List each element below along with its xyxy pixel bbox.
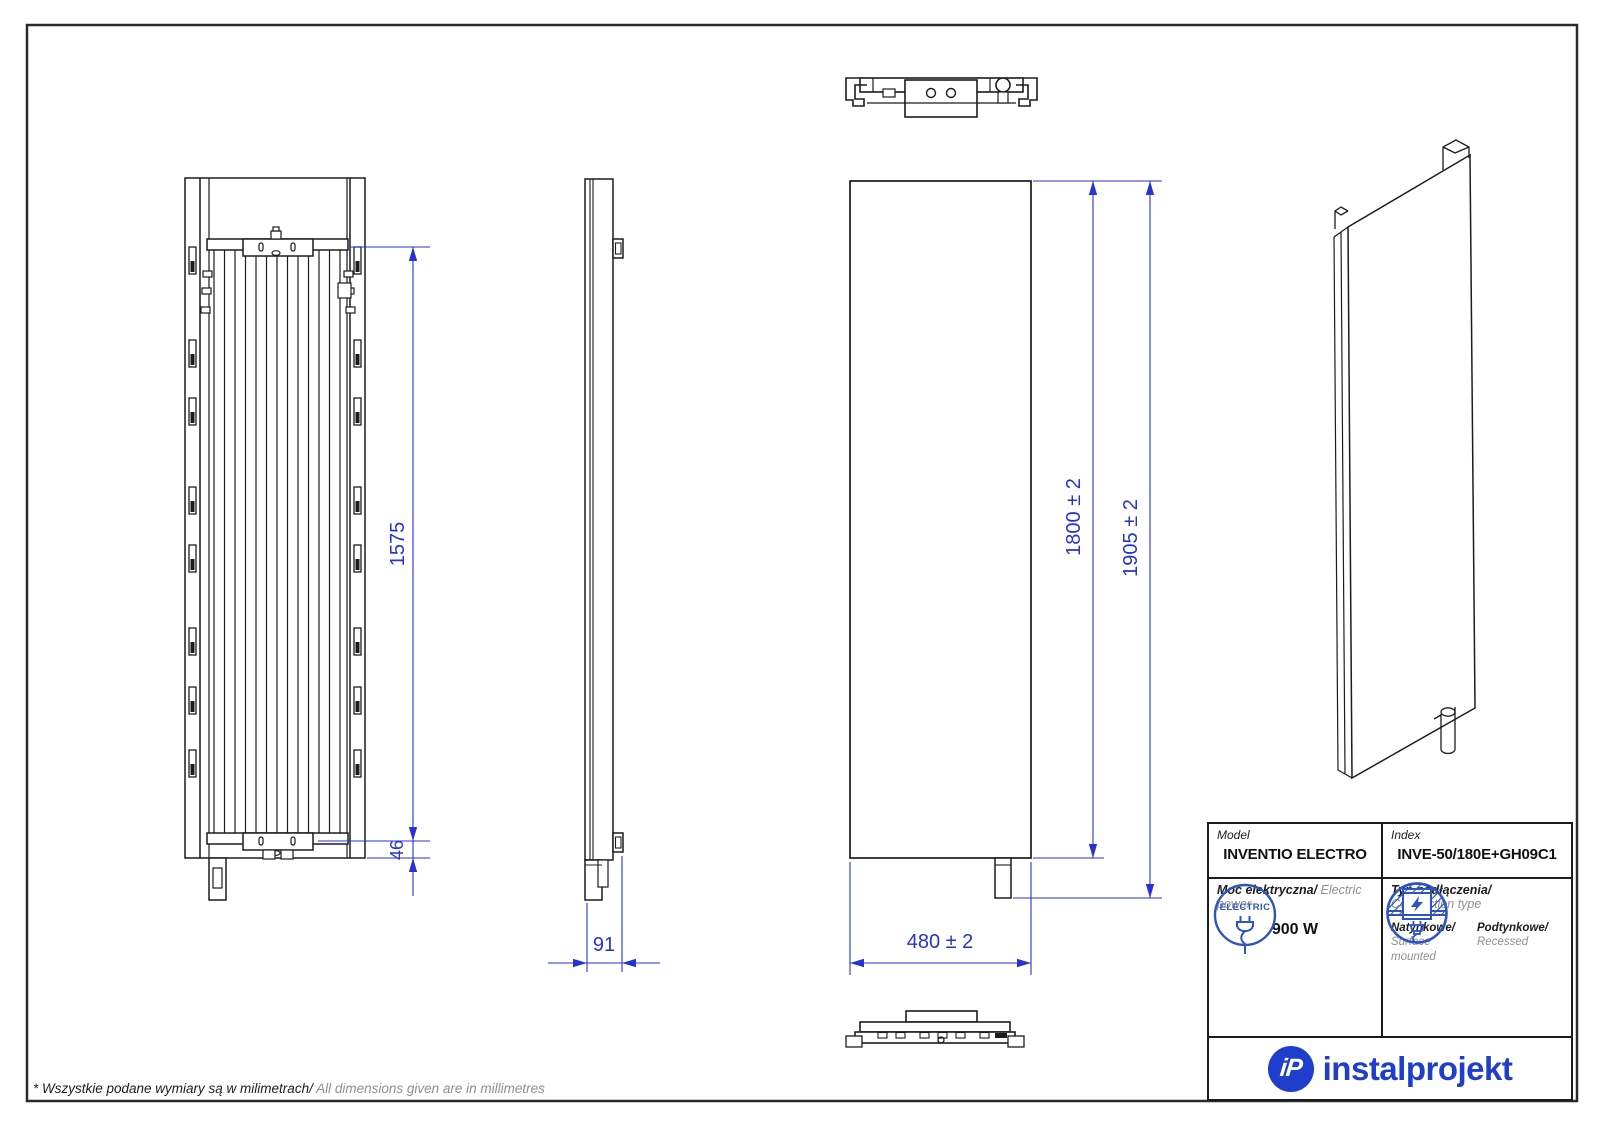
power-cell: Moc elektryczna/ Electric power ELECTRIC… bbox=[1209, 879, 1383, 1038]
model-label: Model bbox=[1217, 828, 1373, 842]
index-cell: Index INVE-50/180E+GH09C1 bbox=[1383, 824, 1571, 879]
side-view bbox=[585, 179, 623, 900]
rear-view bbox=[850, 181, 1031, 898]
footer-note-en: All dimensions given are in millimetres bbox=[313, 1081, 545, 1096]
brand-name: instalprojekt bbox=[1323, 1050, 1513, 1088]
thermostat-knob bbox=[996, 78, 1010, 103]
rail-slots bbox=[189, 247, 361, 777]
heating-element-front bbox=[209, 858, 226, 900]
dim-overall-height: 1905 ± 2 bbox=[1120, 499, 1142, 577]
spec-table: Model INVENTIO ELECTRO Index INVE-50/180… bbox=[1207, 822, 1573, 1101]
dim-panel-height: 1800 ± 2 bbox=[1063, 478, 1085, 556]
front-outline bbox=[185, 178, 365, 858]
dim-bottom-offset: 46 bbox=[387, 840, 407, 860]
index-label: Index bbox=[1391, 828, 1563, 842]
plug-glyph bbox=[1237, 916, 1253, 954]
footer-note: * Wszystkie podane wymiary są w milimetr… bbox=[33, 1081, 545, 1096]
dimension-annotations bbox=[318, 181, 1162, 975]
side-top-tab bbox=[613, 239, 623, 258]
front-view bbox=[185, 178, 365, 900]
dim-front-height: 1575 bbox=[387, 522, 409, 567]
model-value: INVENTIO ELECTRO bbox=[1217, 846, 1373, 863]
footer-note-pl: * Wszystkie podane wymiary są w milimetr… bbox=[33, 1081, 313, 1096]
electric-badge: ELECTRIC bbox=[1220, 902, 1271, 913]
bottom-view bbox=[846, 1011, 1024, 1047]
perspective-view bbox=[1334, 140, 1475, 778]
heating-element-side bbox=[585, 860, 608, 900]
heating-element-rear bbox=[995, 858, 1011, 898]
bottom-bracket bbox=[207, 833, 348, 859]
drawing-sheet: 1575 46 91 1800 ± 2 1905 ± 2 480 ± 2 Mod… bbox=[0, 0, 1600, 1131]
recessed-label-en: Recessed bbox=[1477, 936, 1528, 948]
side-bottom-tab bbox=[613, 833, 623, 852]
top-center-box bbox=[905, 80, 977, 117]
brand-monogram-icon: iP bbox=[1268, 1046, 1314, 1092]
index-value: INVE-50/180E+GH09C1 bbox=[1391, 846, 1563, 863]
panel-face bbox=[1348, 155, 1475, 778]
dim-width: 480 ± 2 bbox=[907, 931, 974, 953]
brand-logo: iP instalprojekt bbox=[1209, 1038, 1571, 1099]
connection-cell: Typ podłączenia/ Connection type bbox=[1383, 879, 1571, 1038]
top-bracket bbox=[207, 227, 348, 256]
dim-depth: 91 bbox=[593, 934, 615, 956]
hanger-tab-left bbox=[1335, 207, 1348, 229]
model-cell: Model INVENTIO ELECTRO bbox=[1209, 824, 1383, 879]
recessed-label-pl: Podtynkowe/ bbox=[1477, 922, 1548, 934]
recessed-label: Podtynkowe/ Recessed bbox=[1477, 921, 1563, 964]
radiator-fins bbox=[214, 250, 340, 844]
brand-monogram: iP bbox=[1278, 1054, 1303, 1083]
top-view bbox=[846, 78, 1037, 117]
